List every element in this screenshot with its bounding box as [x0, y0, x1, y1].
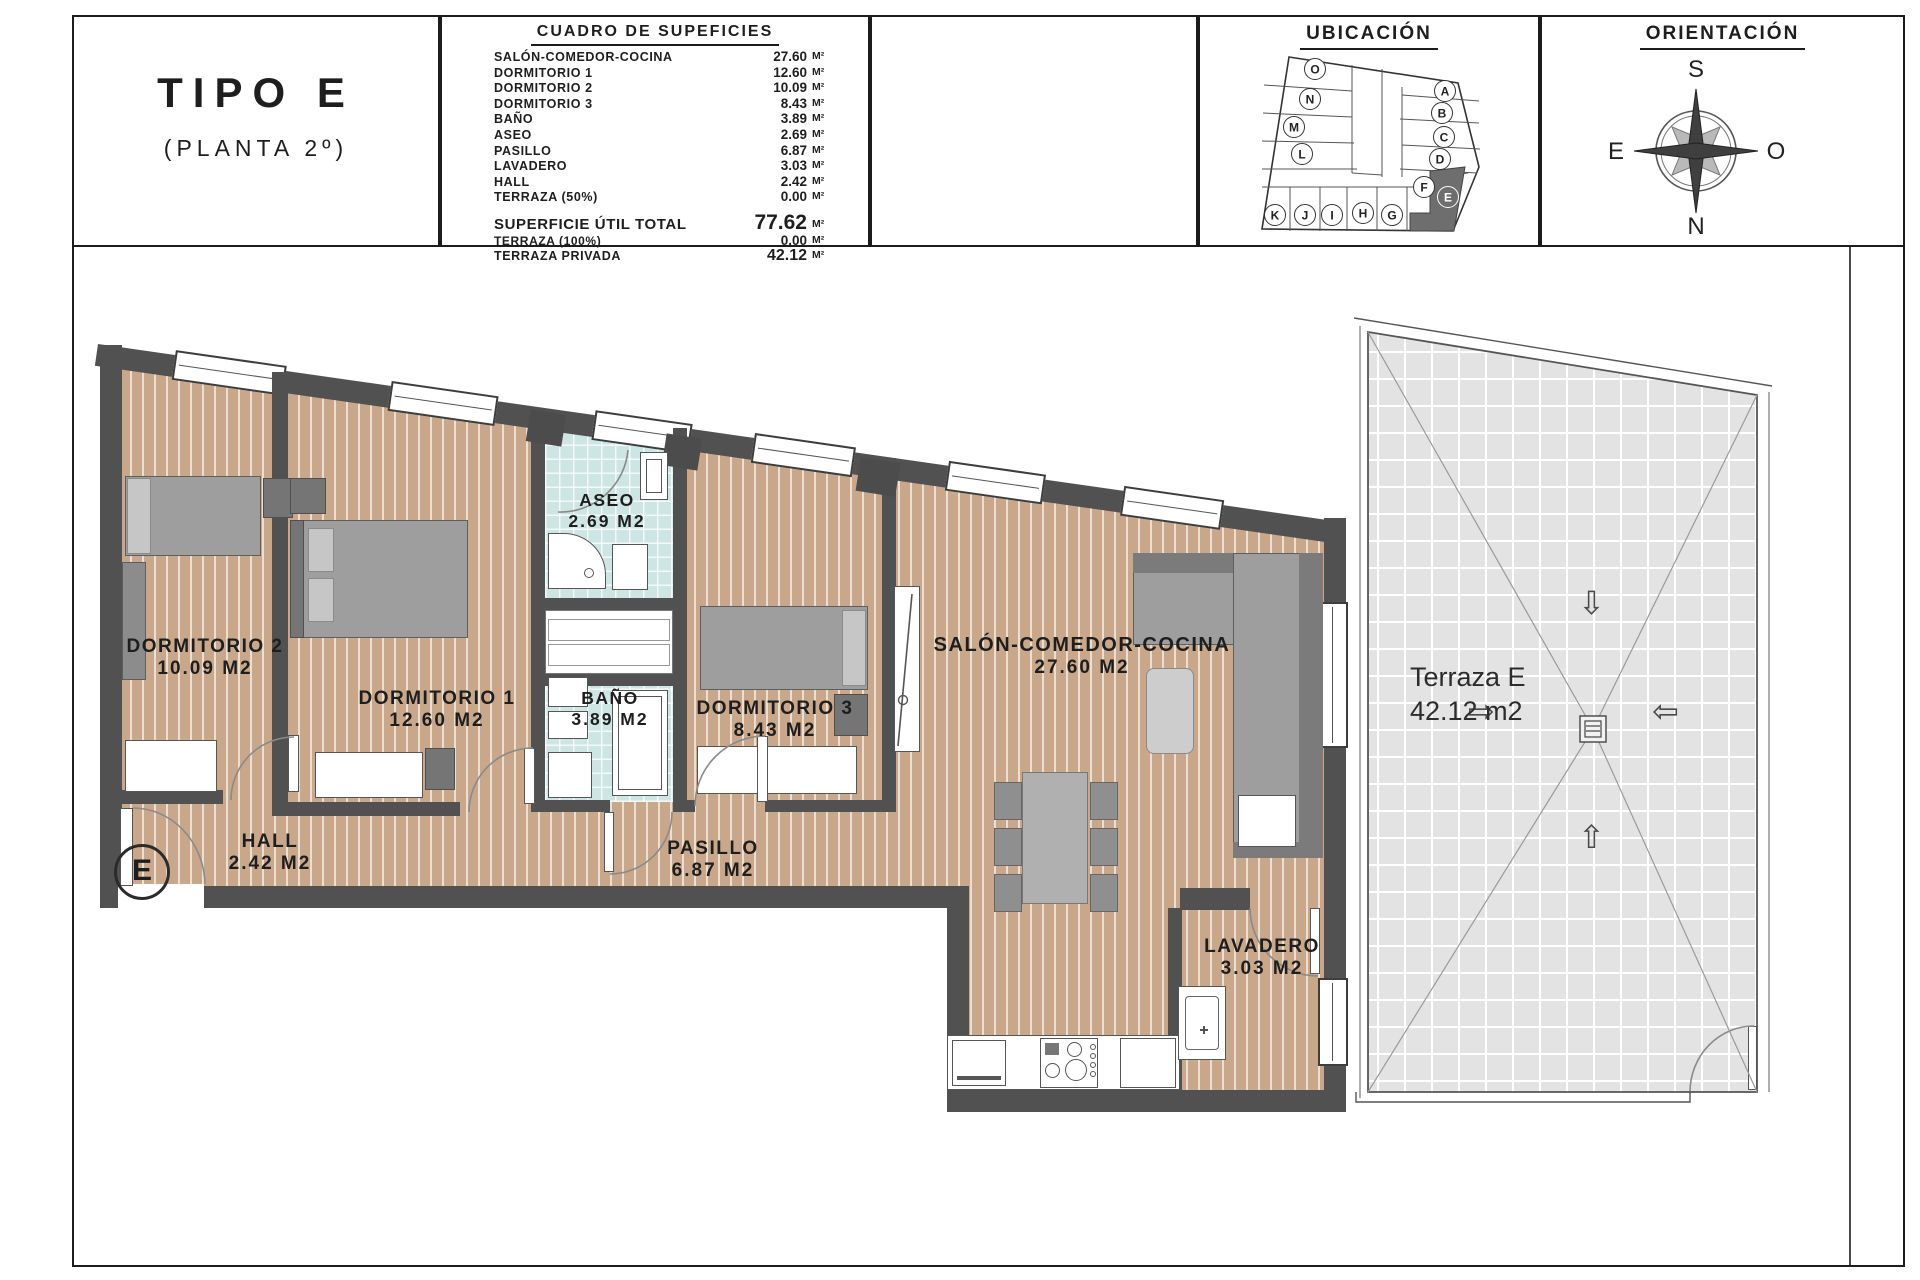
wall-dorm2-dorm1 [272, 372, 288, 802]
unit-marker-f: F [1414, 177, 1435, 198]
site-map: O N M L A B C D F E K J I H G [1232, 55, 1520, 243]
closet [545, 610, 673, 674]
washing-machine [1178, 986, 1226, 1060]
table-row: TERRAZA (50%)0.00M² [494, 190, 842, 206]
wall-dorm3-bottom-a [687, 800, 695, 812]
table-row: SALÓN-COMEDOR-COCINA27.60M² [494, 50, 842, 66]
door-leaf [604, 812, 614, 872]
table-row: LAVADERO3.03M² [494, 159, 842, 175]
plan-sheet: TIPO E (PLANTA 2º) CUADRO DE SUPEFICIES … [0, 0, 1920, 1280]
unit-marker-m: M [1284, 117, 1305, 138]
wall-dorm1-bottom [272, 802, 460, 816]
vanity [548, 677, 588, 707]
surface-table: CUADRO DE SUPEFICIES SALÓN-COMEDOR-COCIN… [440, 15, 870, 247]
table-row: BAÑO3.89M² [494, 112, 842, 128]
unit-marker-g: G [1382, 205, 1403, 226]
ubicacion-block: UBICACIÓN O N M L A B C D F E [1198, 15, 1540, 247]
slope-arrow-up-icon: ⇧ [1578, 818, 1605, 856]
shower-drain [584, 568, 594, 578]
coffee-table [1146, 668, 1194, 754]
unit-marker-n: N [1300, 89, 1321, 110]
unit-marker-j: J [1295, 205, 1316, 226]
tv-cabinet [894, 586, 920, 752]
exterior-wall-left [100, 345, 122, 908]
nightstand [263, 478, 293, 518]
wardrobe [122, 562, 146, 680]
svg-text:G: G [1387, 209, 1396, 223]
table-row: HALL2.42M² [494, 175, 842, 191]
exterior-wall-bottom-kitchen [947, 1090, 1346, 1112]
orientacion-block: ORIENTACIÓN S N E O [1540, 15, 1905, 247]
unit-marker-b: B [1432, 103, 1453, 124]
chair [994, 782, 1022, 820]
compass-west-label: O [1767, 138, 1786, 165]
nightstand [834, 694, 868, 736]
terrace-label: Terraza E 42.12 m2 [1410, 660, 1526, 728]
inner-frame-line [1849, 247, 1851, 1265]
bed-pillow [127, 478, 151, 554]
slope-arrow-down-icon: ⇩ [1578, 584, 1605, 622]
svg-text:K: K [1271, 209, 1280, 223]
sofa-back [1133, 553, 1235, 573]
door-leaf [1748, 1026, 1757, 1090]
empty-box [870, 15, 1198, 247]
svg-text:D: D [1436, 153, 1445, 167]
slope-arrow-left-icon: ⇦ [1652, 692, 1679, 730]
vanity [548, 711, 588, 739]
svg-text:J: J [1302, 209, 1309, 223]
chair [1090, 828, 1118, 866]
table-row-total: SUPERFICIE ÚTIL TOTAL77.62M² [494, 216, 842, 234]
svg-text:A: A [1441, 85, 1450, 99]
compass-east-label: E [1608, 138, 1624, 165]
surface-table-title: CUADRO DE SUPEFICIES [531, 23, 779, 46]
floor-label: (PLANTA 2º) [74, 135, 438, 162]
svg-text:F: F [1420, 181, 1427, 195]
bathtub [612, 690, 668, 796]
desk [697, 746, 857, 794]
unit-marker-k: K [1265, 205, 1286, 226]
unit-marker-i: I [1322, 205, 1343, 226]
compass-south-label: S [1688, 56, 1704, 83]
desk [125, 740, 217, 792]
door-leaf [288, 735, 299, 792]
svg-text:L: L [1298, 148, 1305, 162]
svg-text:M: M [1289, 121, 1299, 135]
door-leaf [524, 748, 535, 804]
bed-pillow [308, 528, 334, 572]
bed-pillow [308, 578, 334, 622]
oven [952, 1040, 1006, 1086]
svg-text:C: C [1440, 131, 1449, 145]
unit-marker-l: L [1292, 144, 1313, 165]
side-table [1238, 795, 1296, 847]
chair [425, 748, 455, 790]
svg-text:B: B [1438, 107, 1447, 121]
exterior-wall-bottom-left [100, 886, 947, 908]
wall-bath-right [673, 428, 687, 812]
unit-marker-a: A [1435, 81, 1456, 102]
orientacion-title: ORIENTACIÓN [1640, 23, 1806, 50]
table-row: DORMITORIO 38.43M² [494, 97, 842, 113]
toilet [548, 752, 592, 798]
pillar [526, 409, 567, 446]
svg-text:I: I [1330, 209, 1333, 223]
nightstand [290, 478, 326, 514]
unit-marker-o: O [1305, 59, 1326, 80]
pillar [856, 457, 901, 497]
chair [1090, 782, 1118, 820]
stove [1040, 1038, 1098, 1088]
door-leaf [757, 736, 768, 802]
chair [994, 874, 1022, 912]
sink [640, 452, 668, 500]
table-row: DORMITORIO 210.09M² [494, 81, 842, 97]
table-row: ASEO2.69M² [494, 128, 842, 144]
svg-text:H: H [1359, 207, 1368, 221]
wall-bano-bottom [545, 800, 610, 812]
svg-text:O: O [1310, 63, 1319, 77]
wall-aseo-bottom [545, 598, 673, 610]
unit-marker-c: C [1434, 127, 1455, 148]
bed-pillow [842, 610, 866, 686]
chair [1090, 874, 1118, 912]
entrance-marker: E [114, 844, 170, 900]
table-row: TERRAZA PRIVADA42.12M² [494, 249, 842, 265]
unit-marker-d: D [1430, 149, 1451, 170]
unit-marker-h: H [1353, 203, 1374, 224]
wall-dorm3-bottom-b [765, 800, 882, 812]
type-label: TIPO E [74, 69, 438, 117]
door-leaf [1310, 908, 1320, 974]
unit-marker-e: E [1438, 187, 1459, 208]
compass-north-label: N [1687, 213, 1704, 236]
toilet [612, 544, 648, 590]
lavadero-terrace-door [1318, 978, 1348, 1066]
svg-text:E: E [1444, 191, 1452, 205]
table-row: PASILLO6.87M² [494, 144, 842, 160]
surface-table-rows: SALÓN-COMEDOR-COCINA27.60M² DORMITORIO 1… [494, 50, 842, 265]
wall-dorm2-bottom [100, 790, 223, 804]
wall-lavadero-top [1180, 888, 1250, 910]
table-row: DORMITORIO 112.60M² [494, 66, 842, 82]
sofa-back [1299, 553, 1323, 853]
ubicacion-title: UBICACIÓN [1300, 23, 1438, 50]
chair [994, 828, 1022, 866]
compass-rose-icon: S N E O [1604, 51, 1789, 236]
title-block: TIPO E (PLANTA 2º) [72, 15, 440, 247]
dining-table [1022, 772, 1088, 904]
kitchen-cabinet [1120, 1038, 1176, 1088]
bed-headboard [290, 520, 304, 638]
svg-text:N: N [1306, 93, 1315, 107]
desk [315, 752, 423, 798]
